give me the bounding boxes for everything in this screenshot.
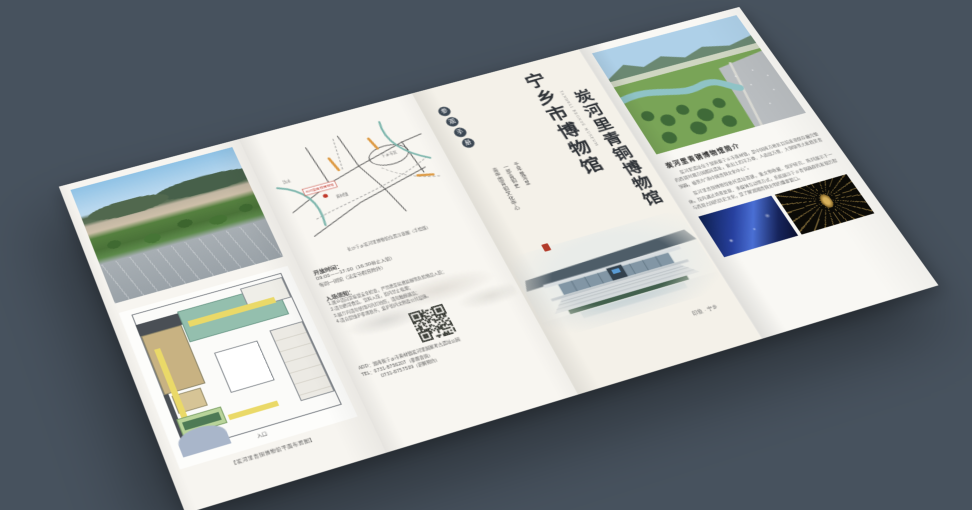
map-label-town: 黄材镇 [335, 191, 349, 198]
mockup-scene: 入口 【炭河里青铜博物馆平面布置图】 [0, 0, 972, 508]
map-pin [322, 193, 328, 198]
badge-seal: 参 [436, 105, 452, 117]
badge-seal: 册 [460, 137, 477, 149]
cover-photo-caption: 印象 · 宁乡 [690, 303, 719, 317]
map-label-city: 宁乡市区 [380, 149, 398, 157]
badge-seal: 手 [452, 126, 468, 138]
visitor-guide-badge: 参 观 手 册 [436, 104, 477, 153]
map-label-river: 沩水 [281, 178, 291, 184]
plan-entrance-label: 入口 [255, 430, 268, 439]
poem-columns: 千年炭河里 一部青铜史 南中国青铜文化中心 [490, 161, 561, 242]
brochure-sheet: 入口 【炭河里青铜博物馆平面布置图】 [59, 7, 939, 510]
badge-seal: 观 [444, 116, 460, 128]
